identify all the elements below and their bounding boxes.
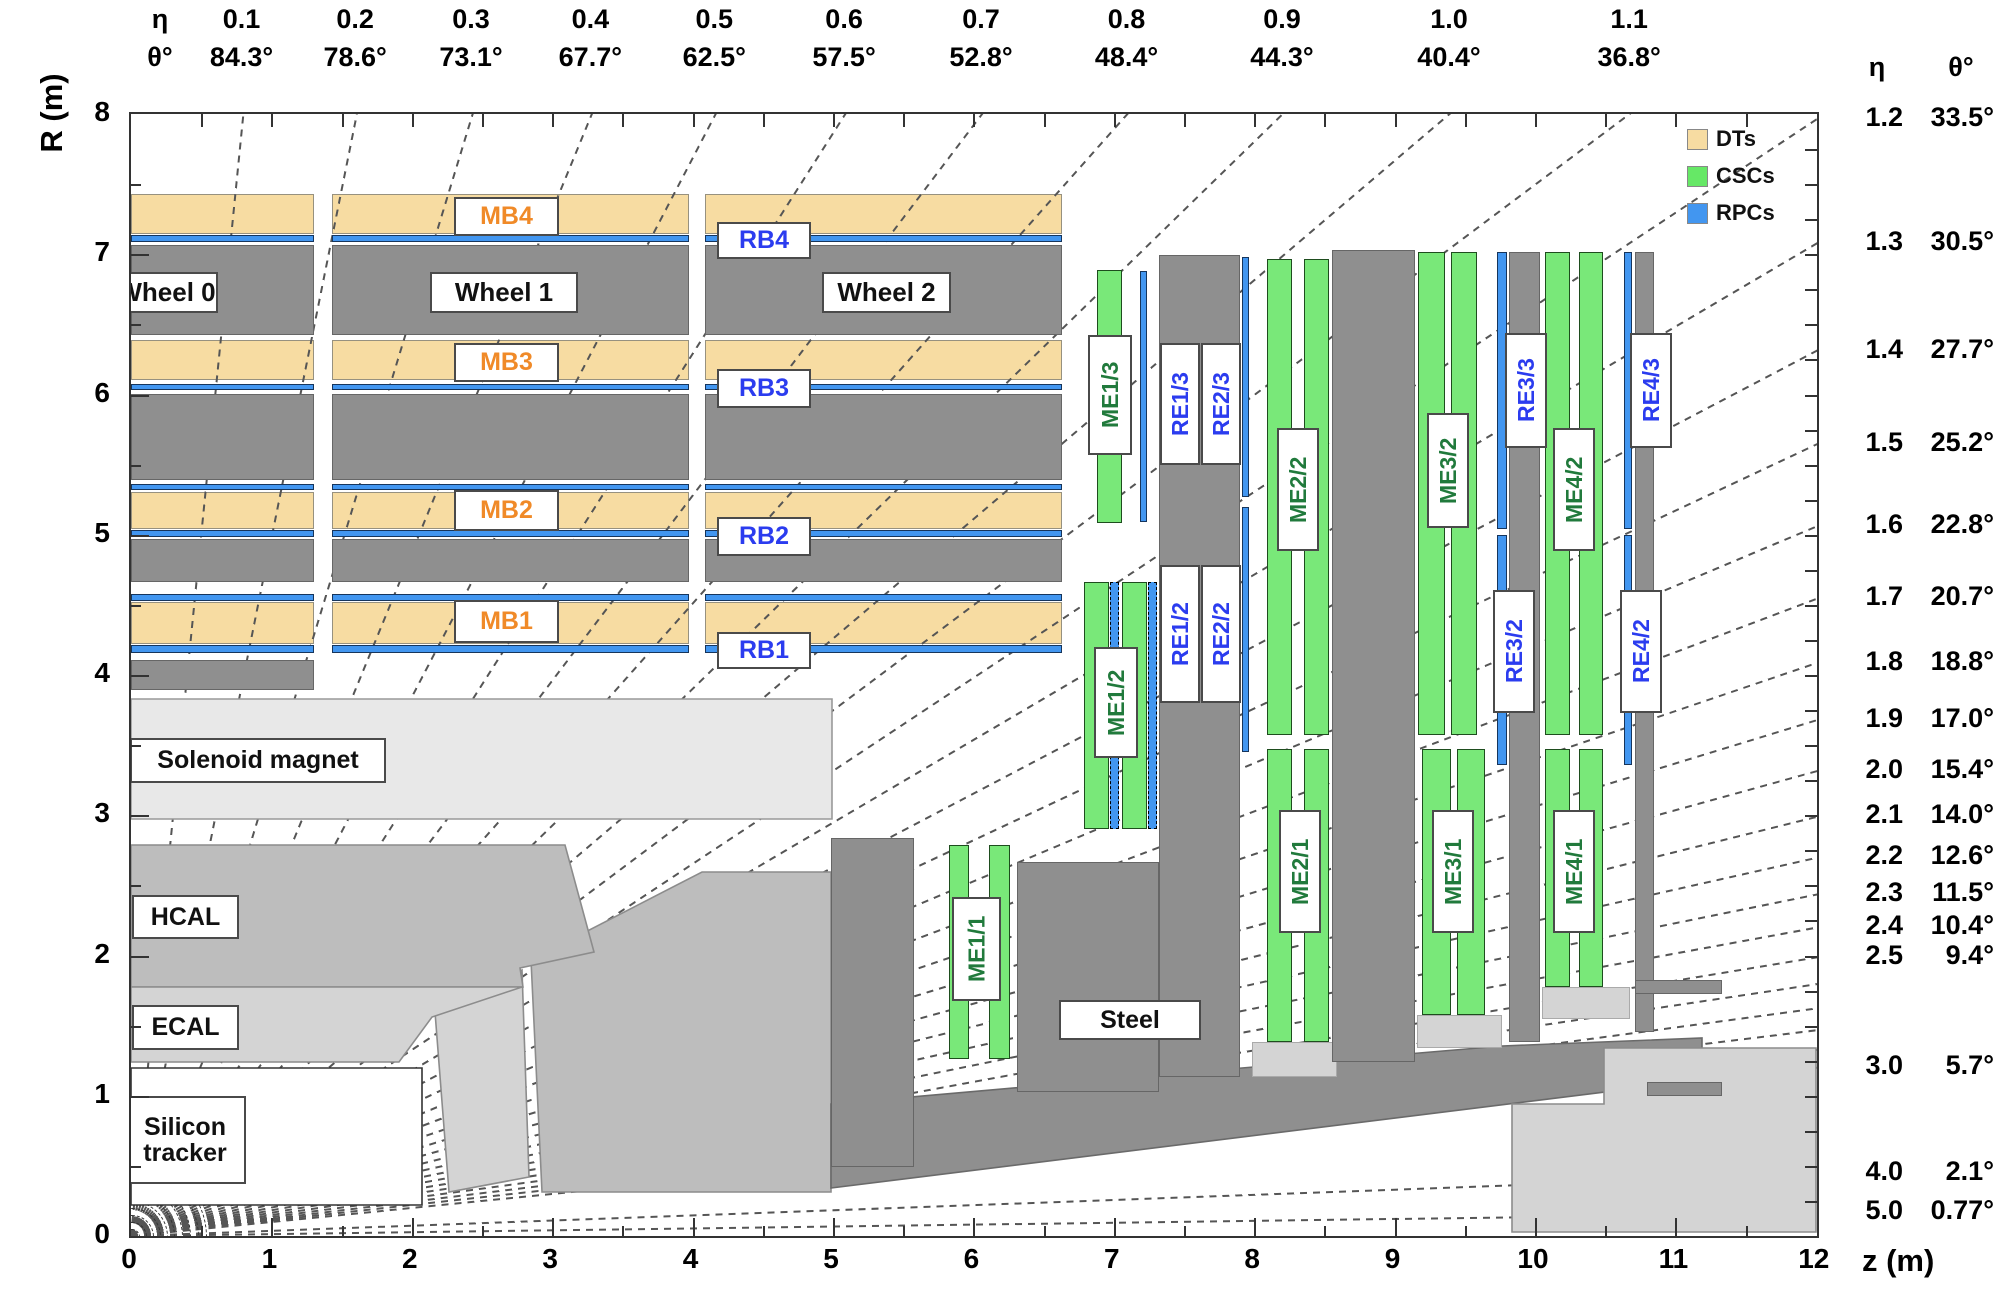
rpc-barrel-strip-0-wheel0 bbox=[131, 235, 314, 242]
yoke-wheel1-layer1 bbox=[332, 394, 689, 480]
right-eta-4-0: 4.0 bbox=[1845, 1156, 1903, 1187]
tick-left-6 bbox=[131, 395, 149, 397]
right-theta-20-7: 20.7° bbox=[1912, 581, 1994, 612]
tick-left-3.5 bbox=[131, 745, 141, 747]
right-theta-10-4: 10.4° bbox=[1912, 910, 1994, 941]
tick-right-5.5 bbox=[1805, 465, 1817, 467]
tick-bottom-1.5 bbox=[342, 1226, 344, 1236]
z-tick-label-4: 4 bbox=[661, 1243, 721, 1275]
label-rb3: RB3 bbox=[717, 369, 811, 408]
tick-right-0.5 bbox=[1805, 1166, 1817, 1168]
legend-label-rpcs: RPCs bbox=[1716, 200, 1775, 226]
tick-top-1 bbox=[271, 114, 273, 127]
label-mb3: MB3 bbox=[454, 343, 559, 382]
top-theta-40-4: 40.4° bbox=[1404, 42, 1494, 73]
legend-label-cscs: CSCs bbox=[1716, 163, 1775, 189]
top-eta-0-3: 0.3 bbox=[426, 4, 516, 35]
tick-top-1.5 bbox=[342, 114, 344, 127]
label-mb4: MB4 bbox=[454, 197, 559, 236]
tick-right-1.75 bbox=[1805, 991, 1817, 993]
tick-top-8.5 bbox=[1324, 114, 1326, 127]
steel-endcap-7 bbox=[1647, 1082, 1722, 1096]
r-tick-label-6: 6 bbox=[62, 377, 110, 409]
tick-right-2.5 bbox=[1805, 885, 1817, 887]
tick-right-2 bbox=[1805, 956, 1817, 958]
tick-top-3.5 bbox=[622, 114, 624, 127]
tick-top-4 bbox=[693, 114, 695, 127]
rpc-barrel-strip-3-wheel1 bbox=[332, 530, 689, 537]
tick-bottom-3 bbox=[552, 1218, 554, 1236]
rpc-barrel-strip-1-wheel0 bbox=[131, 384, 314, 390]
label-wheel-0: Wheel 0 bbox=[129, 272, 218, 313]
tick-bottom-11 bbox=[1675, 1218, 1677, 1236]
top-theta-62-5: 62.5° bbox=[669, 42, 759, 73]
label-ecal: ECAL bbox=[132, 1005, 239, 1050]
top-theta-header: θ° bbox=[138, 42, 182, 73]
tick-right-4.25 bbox=[1805, 640, 1817, 642]
top-eta-0-9: 0.9 bbox=[1237, 4, 1327, 35]
right-eta-2-3: 2.3 bbox=[1845, 877, 1903, 908]
right-eta-1-9: 1.9 bbox=[1845, 703, 1903, 734]
z-tick-label-7: 7 bbox=[1082, 1243, 1142, 1275]
tick-top-6.5 bbox=[1044, 114, 1046, 127]
label-me3-2: ME3/2 bbox=[1427, 413, 1469, 528]
rpc-dashed-bar-1 bbox=[1148, 582, 1157, 829]
tick-bottom-2 bbox=[412, 1218, 414, 1236]
yoke-wheel0-layer2 bbox=[131, 539, 314, 582]
top-eta-0-1: 0.1 bbox=[197, 4, 287, 35]
tick-top-3 bbox=[552, 114, 554, 127]
rpc-barrel-strip-5-wheel0 bbox=[131, 645, 314, 653]
right-eta-2-1: 2.1 bbox=[1845, 799, 1903, 830]
right-eta-3-0: 3.0 bbox=[1845, 1050, 1903, 1081]
tick-top-10.5 bbox=[1605, 114, 1607, 127]
z-tick-label-1: 1 bbox=[239, 1243, 299, 1275]
steel-endcap-1 bbox=[1332, 250, 1415, 1062]
label-silicon-tracker: Silicon tracker bbox=[129, 1096, 246, 1184]
label-me4-1: ME4/1 bbox=[1553, 810, 1595, 933]
tick-left-5 bbox=[131, 535, 149, 537]
label-hcal: HCAL bbox=[132, 895, 239, 939]
label-solenoid-magnet: Solenoid magnet bbox=[130, 738, 386, 783]
top-eta-0-5: 0.5 bbox=[669, 4, 759, 35]
top-eta-1-0: 1.0 bbox=[1404, 4, 1494, 35]
rpc-endcap-bar-2 bbox=[1242, 507, 1249, 752]
tick-top-7.5 bbox=[1184, 114, 1186, 127]
tick-right-0.25 bbox=[1805, 1201, 1817, 1203]
tick-left-2 bbox=[131, 956, 149, 958]
tick-bottom-4.5 bbox=[763, 1226, 765, 1236]
right-theta-11-5: 11.5° bbox=[1912, 877, 1994, 908]
tick-right-5.75 bbox=[1805, 430, 1817, 432]
label-me4-2: ME4/2 bbox=[1553, 428, 1595, 551]
tick-bottom-1 bbox=[271, 1218, 273, 1236]
label-me1-3: ME1/3 bbox=[1088, 335, 1132, 455]
z-tick-label-12: 12 bbox=[1784, 1243, 1844, 1275]
top-eta-0-6: 0.6 bbox=[799, 4, 889, 35]
tick-right-4.75 bbox=[1805, 570, 1817, 572]
rpc-barrel-strip-4-wheel2 bbox=[705, 594, 1062, 601]
top-theta-57-5: 57.5° bbox=[799, 42, 889, 73]
z-tick-label-10: 10 bbox=[1503, 1243, 1563, 1275]
right-theta-15-4: 15.4° bbox=[1912, 754, 1994, 785]
yoke-wheel0-layer1 bbox=[131, 394, 314, 480]
z-tick-label-11: 11 bbox=[1643, 1243, 1703, 1275]
z-tick-label-8: 8 bbox=[1222, 1243, 1282, 1275]
steel-pad-1 bbox=[1417, 1015, 1502, 1048]
tick-right-4 bbox=[1805, 675, 1817, 677]
top-theta-78-6: 78.6° bbox=[310, 42, 400, 73]
label-rb4: RB4 bbox=[717, 222, 811, 259]
r-tick-label-2: 2 bbox=[62, 938, 110, 970]
tick-bottom-11.5 bbox=[1746, 1226, 1748, 1236]
tick-left-7 bbox=[131, 254, 149, 256]
r-tick-label-5: 5 bbox=[62, 517, 110, 549]
rpc-barrel-strip-1-wheel1 bbox=[332, 384, 689, 390]
tick-right-7.75 bbox=[1805, 149, 1817, 151]
right-eta-1-5: 1.5 bbox=[1845, 427, 1903, 458]
tick-top-2 bbox=[412, 114, 414, 127]
tick-right-7.25 bbox=[1805, 219, 1817, 221]
yoke-wheel0-stub bbox=[131, 660, 314, 690]
z-tick-label-5: 5 bbox=[801, 1243, 861, 1275]
label-rb2: RB2 bbox=[717, 517, 811, 556]
tick-right-3 bbox=[1805, 815, 1817, 817]
tick-top-8 bbox=[1254, 114, 1256, 127]
z-axis-title: z (m) bbox=[1862, 1243, 1934, 1279]
label-re1-2: RE1/2 bbox=[1160, 565, 1200, 703]
top-theta-36-8: 36.8° bbox=[1584, 42, 1674, 73]
label-re4-2: RE4/2 bbox=[1620, 590, 1662, 713]
tick-top-0.5 bbox=[201, 114, 203, 127]
right-eta-1-3: 1.3 bbox=[1845, 226, 1903, 257]
tick-bottom-9.5 bbox=[1465, 1226, 1467, 1236]
right-eta-5-0: 5.0 bbox=[1845, 1195, 1903, 1226]
tick-top-5 bbox=[833, 114, 835, 127]
tick-right-7.5 bbox=[1805, 184, 1817, 186]
right-theta-18-8: 18.8° bbox=[1912, 646, 1994, 677]
tick-right-2.25 bbox=[1805, 920, 1817, 922]
tick-top-11 bbox=[1675, 114, 1677, 127]
right-theta-header: θ° bbox=[1928, 52, 1994, 83]
tick-left-6.5 bbox=[131, 324, 141, 326]
right-theta-0-77: 0.77° bbox=[1912, 1195, 1994, 1226]
top-theta-73-1: 73.1° bbox=[426, 42, 516, 73]
tick-top-6 bbox=[973, 114, 975, 127]
label-re3-2: RE3/2 bbox=[1493, 590, 1535, 713]
top-theta-67-7: 67.7° bbox=[545, 42, 635, 73]
legend-label-dts: DTs bbox=[1716, 126, 1756, 152]
right-theta-2-1: 2.1° bbox=[1912, 1156, 1994, 1187]
tick-top-4.5 bbox=[763, 114, 765, 127]
tick-right-6 bbox=[1805, 395, 1817, 397]
right-theta-25-2: 25.2° bbox=[1912, 427, 1994, 458]
tick-top-9 bbox=[1395, 114, 1397, 127]
steel-endcap-4 bbox=[831, 838, 914, 1167]
tick-bottom-10.5 bbox=[1605, 1226, 1607, 1236]
rpc-barrel-strip-0-wheel1 bbox=[332, 235, 689, 242]
label-re2-3: RE2/3 bbox=[1201, 343, 1241, 465]
tick-bottom-8 bbox=[1254, 1218, 1256, 1236]
steel-pad-0 bbox=[1252, 1042, 1337, 1077]
label-me1-2: ME1/2 bbox=[1094, 647, 1138, 758]
tick-right-6.5 bbox=[1805, 324, 1817, 326]
tick-bottom-7 bbox=[1114, 1218, 1116, 1236]
tick-right-5.25 bbox=[1805, 500, 1817, 502]
tick-right-5 bbox=[1805, 535, 1817, 537]
tick-bottom-8.5 bbox=[1324, 1226, 1326, 1236]
label-re2-2: RE2/2 bbox=[1201, 565, 1241, 703]
tick-bottom-10 bbox=[1535, 1218, 1537, 1236]
right-eta-2-5: 2.5 bbox=[1845, 940, 1903, 971]
right-theta-14-0: 14.0° bbox=[1912, 799, 1994, 830]
r-tick-label-0: 0 bbox=[62, 1218, 110, 1250]
right-eta-2-2: 2.2 bbox=[1845, 840, 1903, 871]
tick-right-3.75 bbox=[1805, 710, 1817, 712]
r-tick-label-1: 1 bbox=[62, 1078, 110, 1110]
r-tick-label-8: 8 bbox=[62, 96, 110, 128]
tick-right-7 bbox=[1805, 254, 1817, 256]
legend-item-dts: DTs bbox=[1687, 126, 1756, 152]
label-me1-1: ME1/1 bbox=[952, 897, 1001, 1001]
rpc-barrel-strip-2-wheel2 bbox=[705, 484, 1062, 490]
cms-detector-quadrant-diagram: R (m) z (m) η θ° η θ° DTs CSCs RPCs Whee… bbox=[0, 0, 2000, 1289]
z-tick-label-6: 6 bbox=[941, 1243, 1001, 1275]
tick-right-3.5 bbox=[1805, 745, 1817, 747]
legend-item-cscs: CSCs bbox=[1687, 163, 1775, 189]
rpc-swatch-icon bbox=[1687, 203, 1708, 224]
right-theta-30-5: 30.5° bbox=[1912, 226, 1994, 257]
top-eta-0-4: 0.4 bbox=[545, 4, 635, 35]
tick-left-5.5 bbox=[131, 465, 141, 467]
top-theta-52-8: 52.8° bbox=[936, 42, 1026, 73]
r-tick-label-4: 4 bbox=[62, 657, 110, 689]
tick-right-1.5 bbox=[1805, 1026, 1817, 1028]
right-eta-2-4: 2.4 bbox=[1845, 910, 1903, 941]
right-eta-1-6: 1.6 bbox=[1845, 509, 1903, 540]
tick-bottom-6 bbox=[973, 1218, 975, 1236]
top-eta-1-1: 1.1 bbox=[1584, 4, 1674, 35]
tick-top-2.5 bbox=[482, 114, 484, 127]
top-theta-44-3: 44.3° bbox=[1237, 42, 1327, 73]
tick-bottom-3.5 bbox=[622, 1226, 624, 1236]
rpc-barrel-strip-5-wheel1 bbox=[332, 645, 689, 653]
top-eta-header: η bbox=[140, 4, 180, 35]
r-tick-label-3: 3 bbox=[62, 797, 110, 829]
tick-left-4.5 bbox=[131, 605, 141, 607]
tick-right-6.75 bbox=[1805, 289, 1817, 291]
tick-right-3.25 bbox=[1805, 780, 1817, 782]
csc-swatch-icon bbox=[1687, 166, 1708, 187]
top-eta-0-2: 0.2 bbox=[310, 4, 400, 35]
tick-bottom-9 bbox=[1395, 1218, 1397, 1236]
tick-bottom-4 bbox=[693, 1218, 695, 1236]
plot-area: Wheel 0Wheel 1Wheel 2MB4MB3MB2MB1RB4RB3R… bbox=[129, 112, 1819, 1238]
label-re3-3: RE3/3 bbox=[1505, 333, 1547, 448]
top-theta-48-4: 48.4° bbox=[1082, 42, 1172, 73]
label-rb1: RB1 bbox=[717, 632, 811, 669]
tick-left-1 bbox=[131, 1096, 149, 1098]
dt-swatch-icon bbox=[1687, 129, 1708, 150]
label-re4-3: RE4/3 bbox=[1630, 333, 1672, 448]
top-theta-84-3: 84.3° bbox=[197, 42, 287, 73]
tick-right-1 bbox=[1805, 1096, 1817, 1098]
tick-top-7 bbox=[1114, 114, 1116, 127]
steel-pad-2 bbox=[1542, 987, 1630, 1019]
tick-left-7.5 bbox=[131, 184, 141, 186]
tick-top-9.5 bbox=[1465, 114, 1467, 127]
tick-bottom-2.5 bbox=[482, 1226, 484, 1236]
steel-endcap-5 bbox=[1017, 862, 1159, 1092]
tick-right-6.25 bbox=[1805, 359, 1817, 361]
z-tick-label-3: 3 bbox=[520, 1243, 580, 1275]
label-me3-1: ME3/1 bbox=[1432, 810, 1474, 933]
label-mb2: MB2 bbox=[454, 490, 559, 531]
tick-left-2.5 bbox=[131, 885, 141, 887]
label-me2-1: ME2/1 bbox=[1279, 810, 1321, 933]
steel-endcap-6 bbox=[1635, 980, 1722, 994]
legend-item-rpcs: RPCs bbox=[1687, 200, 1775, 226]
r-tick-label-7: 7 bbox=[62, 236, 110, 268]
top-eta-0-7: 0.7 bbox=[936, 4, 1026, 35]
right-eta-1-2: 1.2 bbox=[1845, 102, 1903, 133]
tick-left-1.5 bbox=[131, 1026, 141, 1028]
tick-left-3 bbox=[131, 815, 149, 817]
right-eta-1-8: 1.8 bbox=[1845, 646, 1903, 677]
tick-right-4.5 bbox=[1805, 605, 1817, 607]
right-eta-2-0: 2.0 bbox=[1845, 754, 1903, 785]
rpc-barrel-strip-3-wheel0 bbox=[131, 530, 314, 537]
rpc-barrel-strip-2-wheel0 bbox=[131, 484, 314, 490]
right-theta-27-7: 27.7° bbox=[1912, 334, 1994, 365]
tick-bottom-7.5 bbox=[1184, 1226, 1186, 1236]
right-theta-17-0: 17.0° bbox=[1912, 703, 1994, 734]
right-eta-1-4: 1.4 bbox=[1845, 334, 1903, 365]
label-wheel-1: Wheel 1 bbox=[430, 272, 578, 313]
tick-right-0.75 bbox=[1805, 1131, 1817, 1133]
tick-bottom-6.5 bbox=[1044, 1226, 1046, 1236]
tick-top-5.5 bbox=[903, 114, 905, 127]
label-mb1: MB1 bbox=[454, 600, 559, 643]
tick-left-4 bbox=[131, 675, 149, 677]
right-theta-12-6: 12.6° bbox=[1912, 840, 1994, 871]
right-theta-9-4: 9.4° bbox=[1912, 940, 1994, 971]
label-me2-2: ME2/2 bbox=[1277, 428, 1319, 551]
tick-right-1.25 bbox=[1805, 1061, 1817, 1063]
right-theta-33-5: 33.5° bbox=[1912, 102, 1994, 133]
tick-bottom-5.5 bbox=[903, 1226, 905, 1236]
tick-bottom-5 bbox=[833, 1218, 835, 1236]
label-wheel-2: Wheel 2 bbox=[822, 272, 951, 313]
z-tick-label-2: 2 bbox=[380, 1243, 440, 1275]
z-tick-label-9: 9 bbox=[1363, 1243, 1423, 1275]
tick-right-2.75 bbox=[1805, 850, 1817, 852]
rpc-endcap-bar-0 bbox=[1140, 271, 1147, 522]
top-eta-0-8: 0.8 bbox=[1082, 4, 1172, 35]
rpc-barrel-strip-4-wheel0 bbox=[131, 594, 314, 601]
tick-top-10 bbox=[1535, 114, 1537, 127]
right-theta-22-8: 22.8° bbox=[1912, 509, 1994, 540]
tick-left-0.5 bbox=[131, 1166, 141, 1168]
right-eta-1-7: 1.7 bbox=[1845, 581, 1903, 612]
tick-bottom-0.5 bbox=[201, 1226, 203, 1236]
label-steel: Steel bbox=[1059, 1000, 1201, 1040]
right-eta-header: η bbox=[1852, 52, 1902, 83]
rpc-endcap-bar-1 bbox=[1242, 257, 1249, 497]
right-theta-5-7: 5.7° bbox=[1912, 1050, 1994, 1081]
label-re1-3: RE1/3 bbox=[1160, 343, 1200, 465]
yoke-wheel1-layer2 bbox=[332, 539, 689, 582]
